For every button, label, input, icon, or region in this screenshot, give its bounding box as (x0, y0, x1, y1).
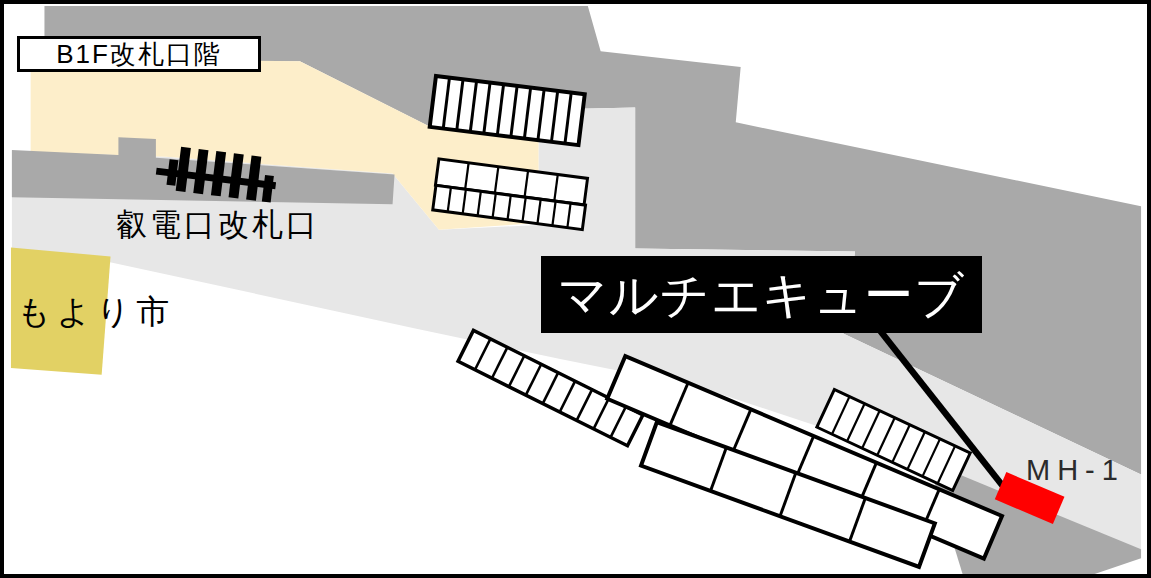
floor-title-box: B1F改札口階 (17, 36, 261, 72)
floor-title-text: B1F改札口階 (56, 39, 222, 69)
multi-ecube-callout: マルチエキューブ (541, 256, 982, 333)
multi-ecube-callout-text: マルチエキューブ (557, 268, 965, 322)
locker-id-label: MH-1 (1026, 454, 1125, 487)
station-floor-map: B1F改札口階 叡電口改札口 もより市 マルチエキューブ MH-1 (0, 0, 1151, 578)
moyori-market-label: もより市 (17, 290, 175, 335)
eiden-gate-label: 叡電口改札口 (116, 204, 320, 246)
